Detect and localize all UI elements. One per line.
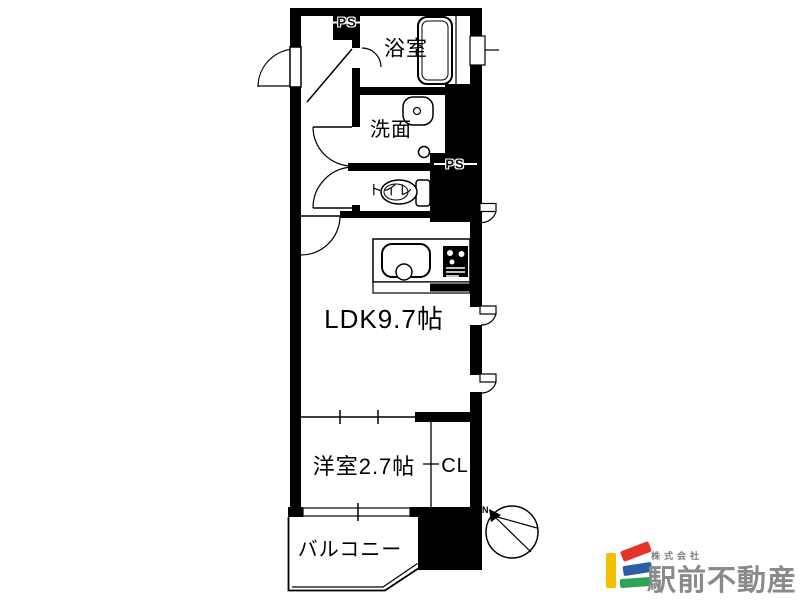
- hall-door-leaf: [307, 49, 352, 102]
- compass-icon: N: [482, 505, 538, 558]
- doors: [258, 47, 381, 255]
- wall: [470, 16, 482, 36]
- room-label-closet: CL: [441, 456, 469, 476]
- wall: [340, 211, 354, 218]
- room-label-washroom: 洗面: [370, 120, 412, 140]
- floorplan-canvas: N 浴室 洗面 トイレ LDK9.7帖 洋室2.7帖 CL バルコニー PS P…: [0, 0, 800, 600]
- washer-knob-icon: [419, 147, 430, 158]
- wall: [470, 325, 482, 375]
- kitchen-sink-icon: [382, 244, 430, 280]
- wall: [348, 163, 432, 171]
- logo-yellow-bar-icon: [606, 553, 616, 588]
- bathroom-door-arc: [362, 48, 381, 67]
- wall-block: [418, 508, 482, 570]
- window-icon: [480, 374, 496, 393]
- room-label-balcony: バルコニー: [298, 540, 403, 560]
- pipe-space-label: PS: [445, 158, 464, 171]
- wall: [415, 412, 470, 422]
- washroom-door: [313, 127, 352, 166]
- company-name: 駅前不動産: [647, 557, 797, 599]
- sliding-partition: [301, 410, 415, 424]
- wall: [290, 8, 482, 16]
- ldk-door: [301, 216, 340, 255]
- pipe-space-label: PS: [337, 16, 356, 29]
- room-label-bathroom: 浴室: [384, 39, 428, 60]
- closet-divider: [423, 422, 439, 507]
- wall: [352, 211, 432, 218]
- company-logo: 株式会社 駅前不動産: [604, 544, 800, 596]
- entrance-door: [258, 47, 301, 87]
- compass-north-label: N: [482, 505, 489, 515]
- wall: [470, 392, 482, 508]
- wall: [470, 222, 482, 307]
- toilet-door: [313, 167, 352, 208]
- window-icon: [480, 204, 496, 223]
- room-label-ldk: LDK9.7帖: [324, 306, 444, 332]
- bathroom-window-icon: [470, 36, 499, 65]
- room-label-toilet: トイレ: [369, 183, 414, 197]
- wall: [352, 68, 360, 127]
- stove-icon: [443, 246, 468, 277]
- floorplan-drawing: N: [0, 0, 800, 600]
- window-icon: [480, 306, 496, 325]
- wall: [288, 507, 303, 517]
- balcony-window-icon: [303, 503, 410, 521]
- kitchen-counter: [373, 239, 470, 293]
- room-label-western-room: 洋室2.7帖: [313, 456, 416, 478]
- wall: [290, 16, 301, 47]
- wall: [352, 87, 453, 95]
- wall: [290, 87, 301, 507]
- wall: [352, 205, 360, 212]
